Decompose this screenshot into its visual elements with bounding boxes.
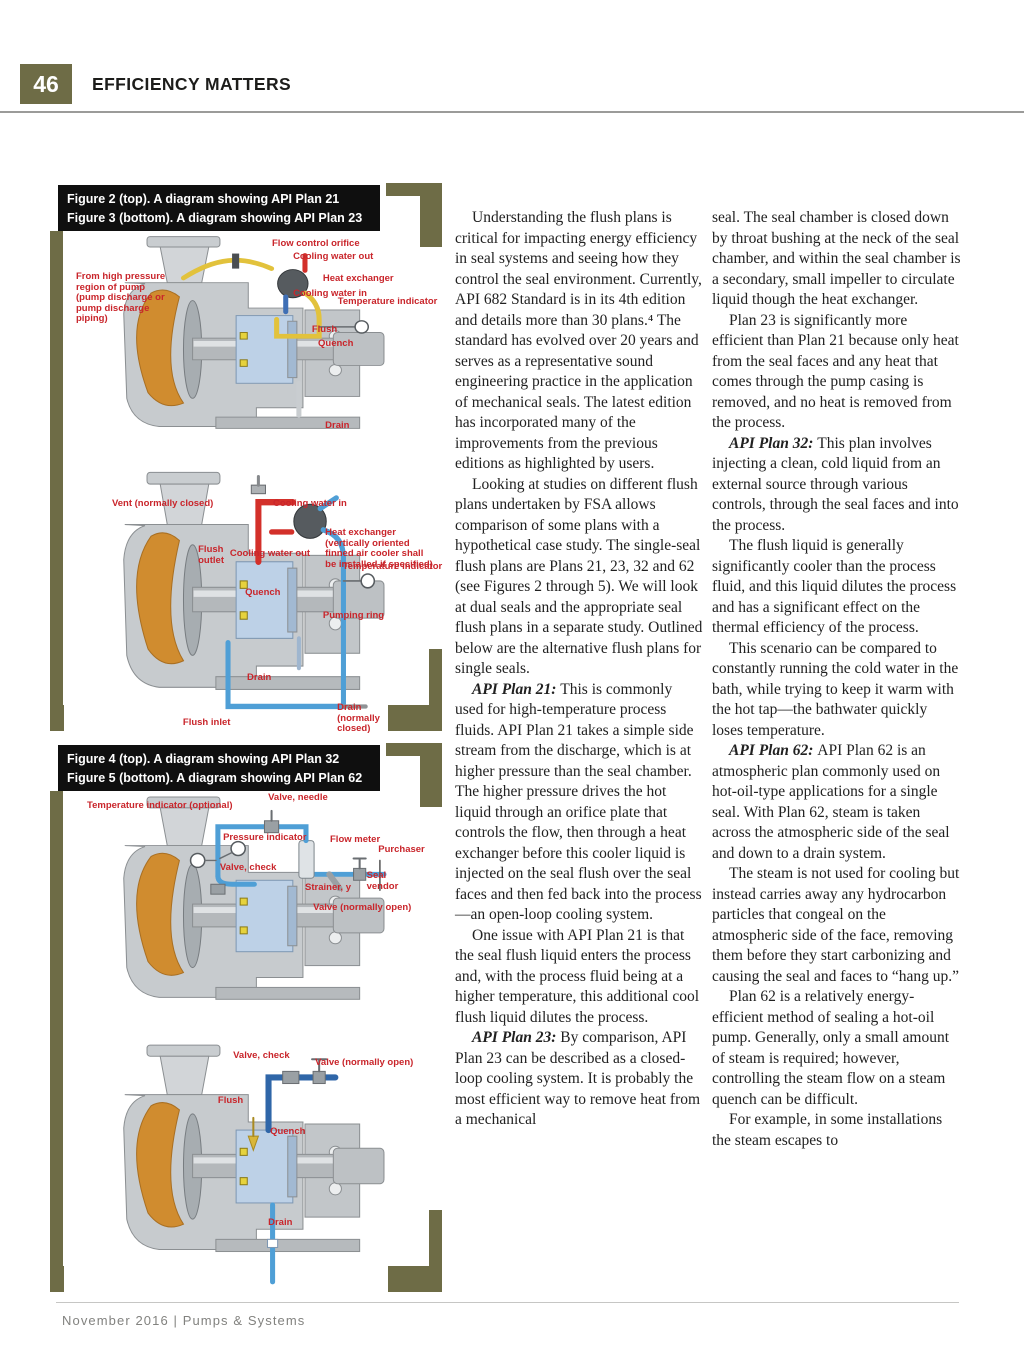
footer-rule (56, 1302, 959, 1303)
diagram-label: Heat exchanger (323, 274, 394, 285)
diagram-label: Flow meter (330, 835, 380, 846)
paragraph-lead: API Plan 21: (472, 681, 560, 698)
article-column-2: seal. The seal chamber is closed down by… (712, 208, 962, 1298)
frame-corner (420, 743, 442, 807)
article-paragraph: seal. The seal chamber is closed down by… (712, 208, 962, 311)
magazine-page: 46 EFFICIENCY MATTERS Figure 2 (top). A … (0, 0, 1024, 1370)
diagram-api-plan-23: Vent (normally closed)Cooling water inHe… (64, 466, 388, 732)
paragraph-lead: API Plan 32: (729, 435, 817, 452)
paragraph-lead: API Plan 23: (472, 1029, 560, 1046)
diagram-label: From high pressure region of pump (pump … (76, 272, 173, 325)
diagram-label: Temperature indicator (343, 562, 443, 573)
diagram-label: Valve (normally open) (315, 1058, 413, 1069)
diagram-label: Flow control orifice (272, 239, 360, 250)
figure-caption-line: Figure 4 (top). A diagram showing API Pl… (67, 750, 371, 769)
frame-bar (50, 231, 63, 731)
figure-caption: Figure 4 (top). A diagram showing API Pl… (58, 745, 380, 791)
diagram-api-plan-21: Flow control orificeCooling water outFro… (64, 231, 388, 466)
diagram-label: Temperature indicator (338, 297, 438, 308)
diagram-label: Drain (247, 673, 271, 684)
figure-caption: Figure 2 (top). A diagram showing API Pl… (58, 185, 380, 231)
diagram-label: Quench (245, 588, 280, 599)
diagram-api-plan-62: Valve, checkValve (normally open)FlushQu… (64, 1039, 388, 1292)
article-paragraph: Plan 62 is a relatively energy-efficient… (712, 987, 962, 1110)
diagram-label: Drain (325, 421, 349, 432)
diagram-label: Flush (312, 325, 337, 336)
header-rule (0, 111, 1024, 113)
pump-cross-section (64, 791, 388, 1039)
frame-bar (50, 791, 63, 1292)
figure-caption-line: Figure 3 (bottom). A diagram showing API… (67, 209, 371, 228)
diagram-label: Flush outlet (198, 545, 230, 566)
article-paragraph: This scenario can be compared to constan… (712, 639, 962, 742)
diagram-label: Strainer, y (305, 883, 351, 894)
article-paragraph: One issue with API Plan 21 is that the s… (455, 926, 703, 1029)
diagram-label: Vent (normally closed) (112, 499, 213, 510)
frame-corner (386, 1266, 442, 1292)
frame-corner (420, 183, 442, 247)
figure-caption-line: Figure 2 (top). A diagram showing API Pl… (67, 190, 371, 209)
diagram-label: Pressure indicator (223, 833, 306, 844)
footer-text: November 2016 | Pumps & Systems (62, 1313, 305, 1328)
diagram-label: Quench (318, 339, 353, 350)
diagram-label: Quench (270, 1127, 305, 1138)
article-paragraph: API Plan 23: By comparison, API Plan 23 … (455, 1028, 703, 1131)
article-paragraph: The flush liquid is generally significan… (712, 536, 962, 639)
diagram-label: Cooling water out (230, 549, 310, 560)
diagram-label: Drain (normally closed) (337, 703, 386, 735)
diagram-label: Flush (218, 1096, 243, 1107)
diagram-label: Cooling water in (273, 499, 347, 510)
figure-caption-line: Figure 5 (bottom). A diagram showing API… (67, 769, 371, 788)
page-number: 46 (20, 64, 72, 104)
diagram-label: Valve, check (220, 863, 277, 874)
diagram-api-plan-32: Valve, needleTemperature indicator (opti… (64, 791, 388, 1039)
diagram-label: Valve, check (233, 1051, 290, 1062)
diagram-label: Valve (normally open) (313, 903, 411, 914)
paragraph-lead: API Plan 62: (729, 742, 817, 759)
diagram-label: Purchaser (378, 845, 424, 856)
article-paragraph: API Plan 21: This is commonly used for h… (455, 680, 703, 926)
article-column-1: Understanding the flush plans is critica… (455, 208, 703, 1298)
diagram-label: Drain (268, 1218, 292, 1229)
diagram-label: Flush inlet (183, 718, 231, 729)
article-paragraph: The steam is not used for cooling but in… (712, 864, 962, 987)
diagram-label: Pumping ring (323, 611, 384, 622)
article-paragraph: API Plan 62: API Plan 62 is an atmospher… (712, 741, 962, 864)
article-paragraph: For example, in some installations the s… (712, 1110, 962, 1151)
article-paragraph: Looking at studies on different flush pl… (455, 475, 703, 680)
diagram-label: Seal vendor (367, 871, 399, 892)
diagram-label: Valve, needle (268, 793, 328, 804)
frame-corner (429, 1210, 442, 1268)
article-paragraph: Understanding the flush plans is critica… (455, 208, 703, 475)
frame-corner (429, 649, 442, 709)
section-title: EFFICIENCY MATTERS (92, 74, 291, 95)
pump-cross-section (64, 1039, 388, 1292)
article-paragraph: Plan 23 is significantly more efficient … (712, 311, 962, 434)
diagram-label: Cooling water out (293, 252, 373, 263)
diagram-label: Temperature indicator (optional) (87, 801, 233, 812)
article-paragraph: API Plan 32: This plan involves injectin… (712, 434, 962, 537)
